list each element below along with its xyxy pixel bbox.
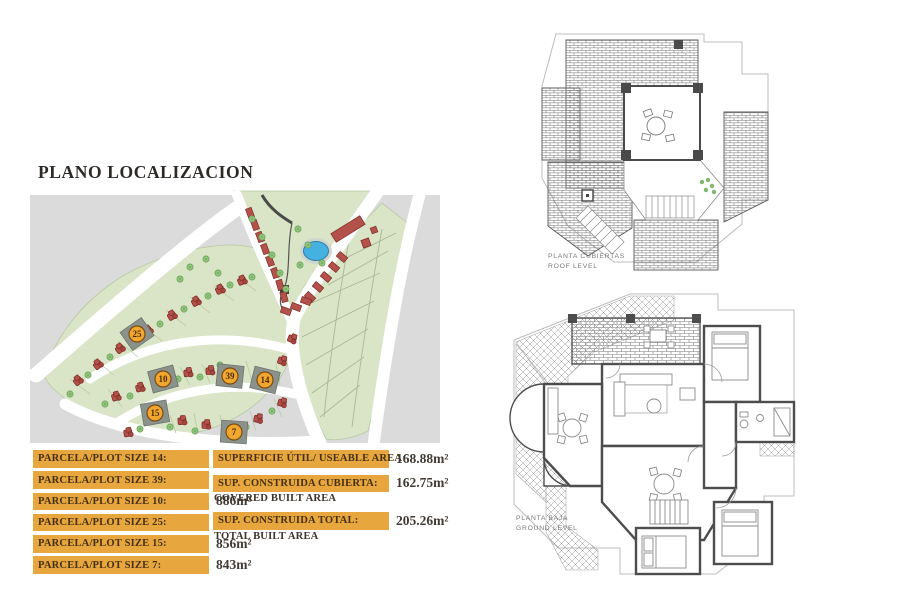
plot-value: 843m² [216,557,252,573]
roof-plan-label-1: PLANTA CUBIERTAS [548,253,625,260]
summary-label: SUP. CONSTRUIDA CUBIERTA: [218,478,378,489]
plot-label: PARCELA/PLOT SIZE 10: [38,496,167,507]
summary-sublabel: COVERED BUILT AREA [214,493,448,505]
ground-stairs [650,500,688,524]
summary-value: 205.26m² [396,513,448,529]
ground-plan-label-2: GROUND LEVEL [516,525,578,532]
svg-text:10: 10 [159,374,169,384]
site-map-svg: 25 10 15 39 14 7 [30,189,440,451]
plot-badge-15: 15 [147,405,163,421]
svg-text:15: 15 [151,408,161,418]
plot-label: PARCELA/PLOT SIZE 15: [38,538,167,549]
tower-room [621,83,703,160]
plot-badge-14: 14 [257,372,273,388]
svg-text:39: 39 [226,371,236,381]
ground-plan-label-1: PLANTA BAJA [516,515,568,522]
porch-table [650,330,666,342]
summary-row: SUPERFICIE ÚTIL/ USEABLE AREA:168.88m² [213,450,448,468]
svg-text:25: 25 [133,329,143,339]
bed-bottom-center [642,536,686,568]
roof-plan-label-2: ROOF LEVEL [548,263,598,270]
roof-stairs-straight [646,196,694,218]
summary-value: 162.75m² [396,475,448,491]
brochure-page: PLANO LOCALIZACION [0,0,900,600]
ground-plan: PLANTA BAJA GROUND LEVEL [502,288,802,578]
plot-label: PARCELA/PLOT SIZE 7: [38,560,161,571]
summary-sublabel: TOTAL BUILT AREA [214,531,448,543]
page-title: PLANO LOCALIZACION [38,162,253,183]
bed-bottom-right [722,510,758,556]
ground-plan-svg: PLANTA BAJA GROUND LEVEL [502,288,802,578]
roof-plan: PLANTA CUBIERTAS ROOF LEVEL [528,30,796,278]
plot-badge-25: 25 [129,326,145,342]
plot-label: PARCELA/PLOT SIZE 14: [38,453,167,464]
svg-text:14: 14 [261,375,271,385]
roof-plan-svg: PLANTA CUBIERTAS ROOF LEVEL [528,30,796,278]
plot-badge-10: 10 [155,371,171,387]
svg-text:7: 7 [232,427,237,437]
porch [568,314,701,364]
plot-badge-39: 39 [222,368,238,384]
plot-badge-7: 7 [226,424,242,440]
plot-label: PARCELA/PLOT SIZE 25: [38,517,167,528]
chimney [674,40,683,49]
summary-value: 168.88m² [396,451,448,467]
plot-label: PARCELA/PLOT SIZE 39: [38,475,167,486]
summary-label: SUP. CONSTRUIDA TOTAL: [218,515,358,526]
summary-row: SUP. CONSTRUIDA TOTAL:205.26m² TOTAL BUI… [213,512,448,543]
site-map: 25 10 15 39 14 7 [30,189,440,451]
bed-top-right [712,332,748,380]
roof-table [647,117,665,135]
skylight-dot [586,194,589,197]
plot-row: PARCELA/PLOT SIZE 7:843m² [33,556,252,574]
area-summary-table: SUPERFICIE ÚTIL/ USEABLE AREA:168.88m² S… [213,450,448,550]
summary-label: SUPERFICIE ÚTIL/ USEABLE AREA: [218,453,406,464]
summary-row: SUP. CONSTRUIDA CUBIERTA:162.75m² COVERE… [213,475,448,506]
